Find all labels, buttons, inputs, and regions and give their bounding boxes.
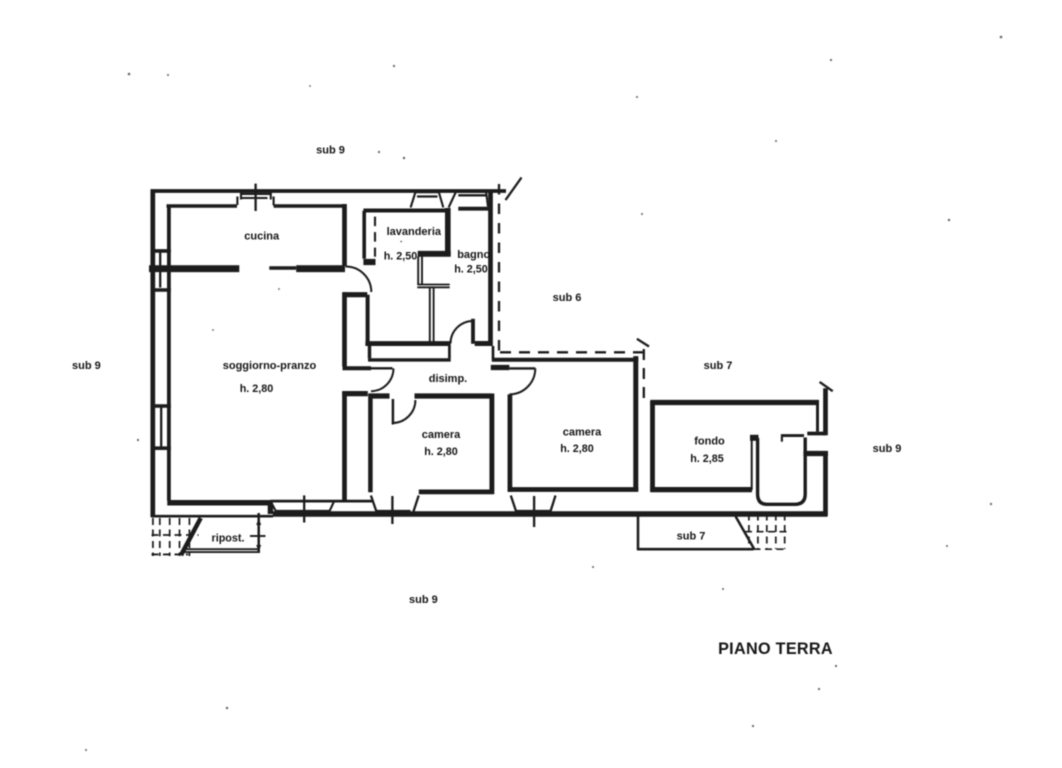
svg-text:soggiorno-pranzo: soggiorno-pranzo <box>223 360 317 372</box>
svg-text:h. 2,80: h. 2,80 <box>240 383 274 395</box>
svg-text:cucina: cucina <box>244 231 280 243</box>
svg-text:sub 9: sub 9 <box>316 144 345 156</box>
svg-text:h. 2,85: h. 2,85 <box>690 453 724 465</box>
svg-text:camera: camera <box>422 429 461 441</box>
svg-text:fondo: fondo <box>694 435 725 447</box>
svg-text:h. 2,50: h. 2,50 <box>454 264 488 276</box>
svg-text:sub 9: sub 9 <box>409 594 438 606</box>
svg-text:PIANO TERRA: PIANO TERRA <box>718 640 833 658</box>
svg-text:h. 2,80: h. 2,80 <box>424 446 458 458</box>
svg-text:sub 9: sub 9 <box>72 360 101 372</box>
svg-text:ripost.: ripost. <box>212 532 245 544</box>
svg-text:lavanderia: lavanderia <box>387 226 442 238</box>
svg-text:h. 2,80: h. 2,80 <box>560 443 594 455</box>
svg-text:sub 7: sub 7 <box>677 530 706 542</box>
svg-text:h. 2,50: h. 2,50 <box>384 250 418 262</box>
svg-text:sub 6: sub 6 <box>553 292 582 304</box>
svg-text:bagno: bagno <box>457 249 490 261</box>
svg-text:sub 7: sub 7 <box>704 360 733 372</box>
svg-text:camera: camera <box>563 426 602 438</box>
svg-text:sub 9: sub 9 <box>873 443 902 455</box>
svg-text:disimp.: disimp. <box>429 373 468 385</box>
